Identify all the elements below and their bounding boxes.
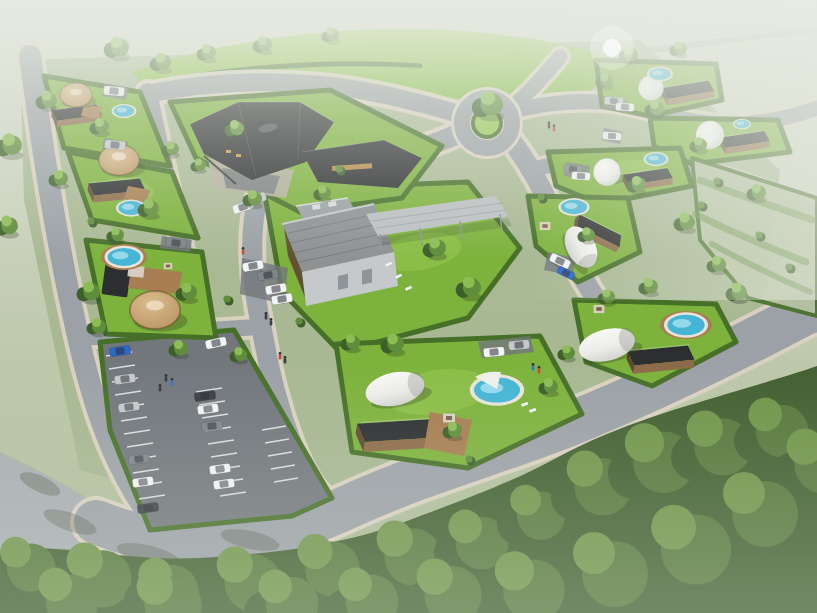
pool-tunnel-east — [664, 312, 708, 338]
forest-haze — [0, 360, 817, 613]
grill-pad — [164, 263, 172, 269]
car — [483, 346, 505, 357]
firepit-pad — [594, 305, 605, 313]
person — [265, 312, 268, 320]
glamping-resort-aerial-render — [0, 0, 817, 613]
sun-glint — [590, 26, 634, 70]
site-aerial-view — [0, 0, 817, 613]
right-haze — [520, 0, 817, 300]
person — [270, 318, 273, 326]
car — [508, 339, 530, 350]
person — [279, 352, 282, 360]
